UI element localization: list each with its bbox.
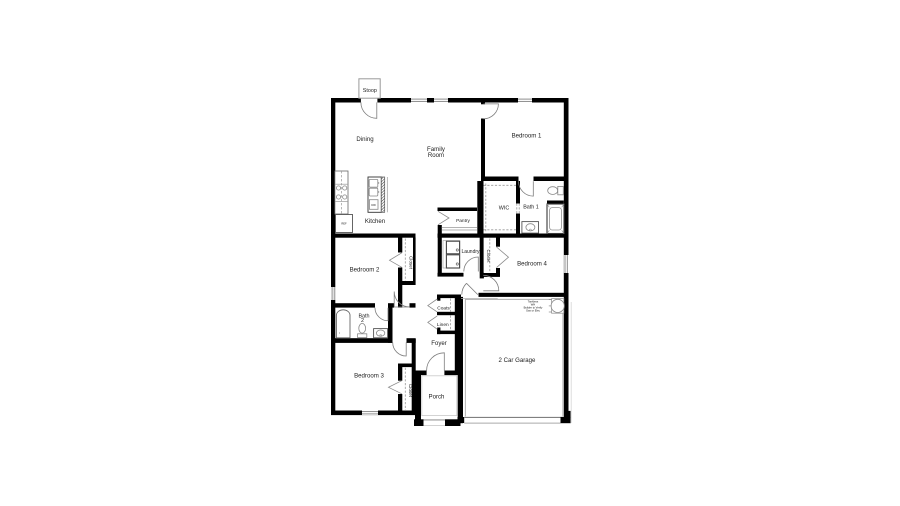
svg-text:WIC: WIC bbox=[499, 206, 510, 212]
svg-text:Foyer: Foyer bbox=[431, 340, 447, 347]
svg-text:Bedroom 2: Bedroom 2 bbox=[350, 267, 380, 274]
svg-text:Room: Room bbox=[428, 152, 444, 159]
svg-text:Kitchen: Kitchen bbox=[365, 218, 385, 225]
svg-text:Porch: Porch bbox=[429, 394, 445, 401]
svg-text:Pantry: Pantry bbox=[456, 218, 470, 224]
svg-text:Bath 1: Bath 1 bbox=[523, 205, 539, 211]
svg-text:Bedroom 3: Bedroom 3 bbox=[354, 372, 384, 379]
svg-text:Closet: Closet bbox=[408, 256, 413, 270]
svg-text:Laundry: Laundry bbox=[461, 249, 480, 255]
svg-text:Gas or Elec: Gas or Elec bbox=[526, 309, 541, 313]
svg-text:Stoop: Stoop bbox=[363, 88, 377, 94]
svg-text:REF: REF bbox=[341, 222, 347, 226]
svg-text:Closet: Closet bbox=[486, 249, 491, 263]
svg-text:Closet: Closet bbox=[408, 384, 413, 398]
svg-text:Linen: Linen bbox=[437, 322, 449, 328]
svg-text:2 Car Garage: 2 Car Garage bbox=[499, 357, 537, 364]
svg-text:2: 2 bbox=[361, 318, 364, 324]
svg-text:DW: DW bbox=[371, 203, 376, 207]
svg-text:Coats: Coats bbox=[437, 305, 450, 311]
svg-text:Dining: Dining bbox=[356, 136, 373, 143]
svg-text:Bedroom 1: Bedroom 1 bbox=[512, 132, 542, 139]
svg-text:Bedroom 4: Bedroom 4 bbox=[517, 260, 547, 267]
